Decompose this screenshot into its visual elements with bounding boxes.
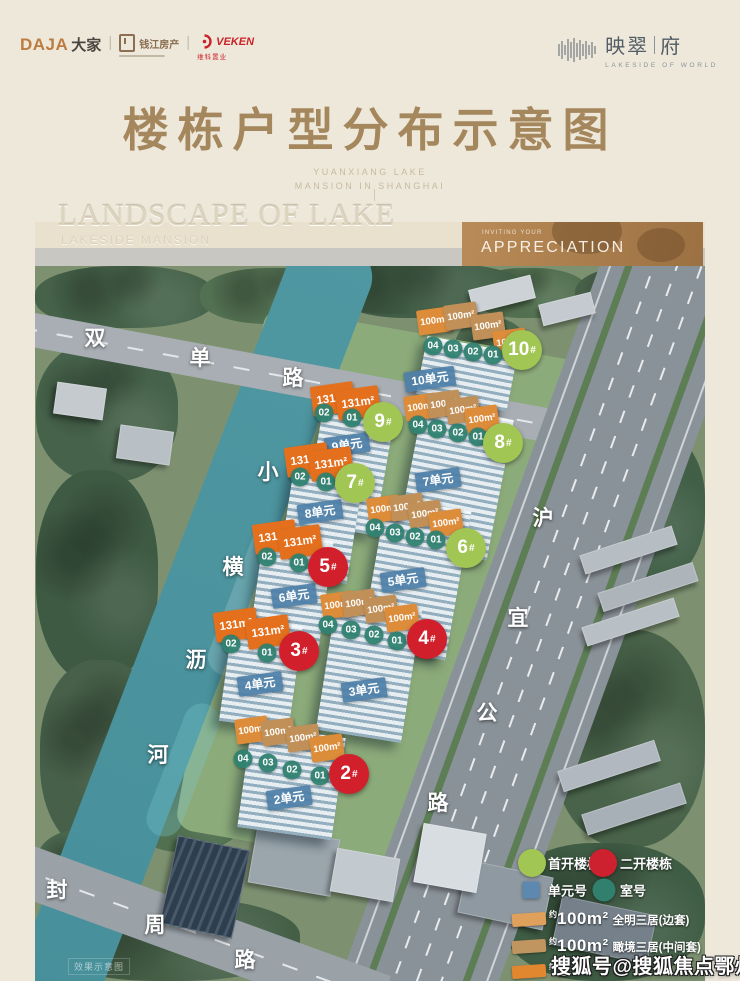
veken-logo-subtext: 维科置业 bbox=[197, 51, 227, 61]
qianjiang-seal-icon bbox=[119, 34, 135, 52]
building-marker-5: 5# bbox=[308, 547, 348, 587]
veken-logo-label: VEKEN bbox=[216, 36, 254, 48]
room-number-tag: 02 bbox=[222, 635, 241, 654]
room-number-tag: 02 bbox=[464, 343, 483, 362]
marker-hash-suffix: # bbox=[469, 543, 475, 554]
room-number-tag: 01 bbox=[388, 632, 407, 651]
brand-bars-icon bbox=[558, 36, 596, 64]
qianjiang-logo-subtext bbox=[119, 55, 165, 57]
room-number-tag: 02 bbox=[258, 548, 277, 567]
legend-area-text: 约 bbox=[549, 910, 557, 919]
legend-circle-swatch bbox=[518, 849, 546, 877]
room-number-tag: 02 bbox=[406, 528, 425, 547]
room-number-tag: 02 bbox=[283, 761, 302, 780]
landscape-title: LANDSCAPE OF LAKE bbox=[58, 197, 395, 233]
low-rise-building bbox=[53, 382, 107, 421]
veken-pinwheel-icon bbox=[197, 34, 212, 49]
legend-area-text: 约 bbox=[549, 937, 557, 946]
low-rise-building bbox=[413, 823, 486, 893]
legend-marker-label: 二开楼栋 bbox=[620, 854, 672, 873]
daja-logo: DAJA大家 bbox=[20, 34, 101, 55]
qianjiang-logo: 钱江房产 bbox=[119, 34, 179, 57]
marker-hash-suffix: # bbox=[530, 345, 536, 356]
marker-hash-suffix: # bbox=[331, 562, 337, 573]
marker-hash-suffix: # bbox=[358, 478, 364, 489]
room-number-tag: 03 bbox=[259, 754, 278, 773]
room-number-tag: 01 bbox=[258, 644, 277, 663]
room-number-tag: 01 bbox=[311, 767, 330, 786]
room-number-tag: 04 bbox=[319, 616, 338, 635]
brand-name: 映翠 府 bbox=[605, 30, 682, 59]
appreciation-box: INVITING YOUR APPRECIATION bbox=[462, 222, 703, 266]
leaf-shadow bbox=[637, 228, 685, 262]
room-number-tag: 02 bbox=[449, 424, 468, 443]
road-label-char: 双 bbox=[85, 322, 106, 352]
marker-hash-suffix: # bbox=[506, 438, 512, 449]
marker-hash-suffix: # bbox=[302, 646, 308, 657]
room-number-tag: 03 bbox=[386, 524, 405, 543]
brand-name-part1: 映翠 bbox=[605, 30, 649, 59]
legend-area-text: 100m² bbox=[557, 909, 609, 928]
room-number-tag: 01 bbox=[290, 554, 309, 573]
road-label-char: 路 bbox=[428, 787, 449, 817]
road-label-char: 周 bbox=[145, 909, 166, 939]
legend-marker-label: 单元号 bbox=[548, 881, 587, 900]
building-marker-7: 7# bbox=[335, 463, 375, 503]
building-marker-2: 2# bbox=[329, 754, 369, 794]
project-brand-logo: 映翠 府 LAKESIDE OF WORLD bbox=[558, 30, 718, 69]
road-label-char: 路 bbox=[235, 944, 256, 974]
poster-page: DAJA大家 | 钱江房产 | VEKEN 维科置业 bbox=[0, 0, 740, 981]
legend-marker-label: 室号 bbox=[620, 881, 646, 900]
developer-logos: DAJA大家 | 钱江房产 | VEKEN 维科置业 bbox=[20, 34, 254, 61]
building-marker-3: 3# bbox=[279, 631, 319, 671]
veken-logo: VEKEN 维科置业 bbox=[197, 34, 254, 61]
road-label-char: 小 bbox=[258, 456, 279, 486]
road-label-char: 沥 bbox=[186, 644, 207, 674]
room-number-tag: 01 bbox=[317, 473, 336, 492]
marker-hash-suffix: # bbox=[386, 417, 392, 428]
legend-square-swatch bbox=[523, 882, 540, 899]
room-number-tag: 02 bbox=[315, 404, 334, 423]
room-number-tag: 03 bbox=[444, 340, 463, 359]
building-marker-4: 4# bbox=[407, 619, 447, 659]
brand-name-part2: 府 bbox=[660, 30, 682, 59]
room-number-tag: 02 bbox=[291, 468, 310, 487]
legend-area-label: 约100m²全明三居(边套) bbox=[549, 909, 689, 929]
daja-logo-cn: 大家 bbox=[71, 37, 101, 54]
legend-circle-swatch bbox=[589, 849, 617, 877]
site-plan-map: 效果示意图 双单路小横沥河沪宜公路封周路100m²100m²100m²100m²… bbox=[35, 266, 705, 981]
page-subtitle: YUANXIANG LAKE MANSION IN SHANGHAI bbox=[0, 166, 740, 194]
appreciation-title: APPRECIATION bbox=[481, 239, 625, 257]
logo-divider: | bbox=[108, 34, 112, 52]
room-number-tag: 03 bbox=[342, 621, 361, 640]
logo-divider: | bbox=[186, 34, 190, 52]
legend-area-swatch bbox=[512, 912, 547, 927]
daja-logo-en: DAJA bbox=[20, 35, 68, 54]
room-number-tag: 04 bbox=[234, 750, 253, 769]
building-marker-6: 6# bbox=[446, 528, 486, 568]
marker-hash-suffix: # bbox=[430, 634, 436, 645]
room-number-tag: 01 bbox=[484, 346, 503, 365]
legend-circle-swatch bbox=[593, 879, 616, 902]
legend-area-text: 全明三居(边套) bbox=[613, 915, 690, 927]
watermark: 搜狐号@搜狐焦点鄂州站 bbox=[551, 950, 740, 979]
road-label-char: 单 bbox=[190, 342, 211, 372]
road-label-char: 沪 bbox=[533, 502, 554, 532]
road-label-char: 封 bbox=[47, 874, 68, 904]
page-subtitle-line1: YUANXIANG LAKE bbox=[313, 167, 427, 177]
marker-hash-suffix: # bbox=[352, 769, 358, 780]
brand-subtitle: LAKESIDE OF WORLD bbox=[605, 62, 718, 69]
building-marker-9: 9# bbox=[363, 402, 403, 442]
road-label-char: 路 bbox=[283, 362, 304, 392]
room-number-tag: 03 bbox=[428, 420, 447, 439]
road-label-char: 公 bbox=[477, 697, 498, 727]
room-number-tag: 04 bbox=[424, 337, 443, 356]
road-label-char: 河 bbox=[148, 739, 169, 769]
room-number-tag: 02 bbox=[365, 626, 384, 645]
qianjiang-logo-label: 钱江房产 bbox=[139, 36, 179, 51]
page-title: 楼栋户型分布示意图 bbox=[0, 94, 740, 160]
legend-area-swatch bbox=[512, 939, 547, 954]
appreciation-kicker: INVITING YOUR bbox=[482, 230, 543, 236]
building-marker-8: 8# bbox=[483, 423, 523, 463]
room-number-tag: 04 bbox=[409, 416, 428, 435]
landscape-subtitle: LAKESIDE MANSION bbox=[61, 233, 211, 247]
brand-name-divider bbox=[654, 36, 655, 54]
legend-area-swatch bbox=[512, 964, 547, 979]
room-number-tag: 04 bbox=[366, 519, 385, 538]
low-rise-building bbox=[116, 424, 174, 465]
page-subtitle-line2: MANSION IN SHANGHAI bbox=[295, 181, 446, 191]
road-label-char: 宜 bbox=[508, 602, 529, 632]
render-disclaimer: 效果示意图 bbox=[68, 958, 130, 975]
building-marker-10: 10# bbox=[502, 330, 542, 370]
room-number-tag: 01 bbox=[427, 531, 446, 550]
road-label-char: 横 bbox=[223, 551, 244, 581]
room-number-tag: 01 bbox=[343, 409, 362, 428]
